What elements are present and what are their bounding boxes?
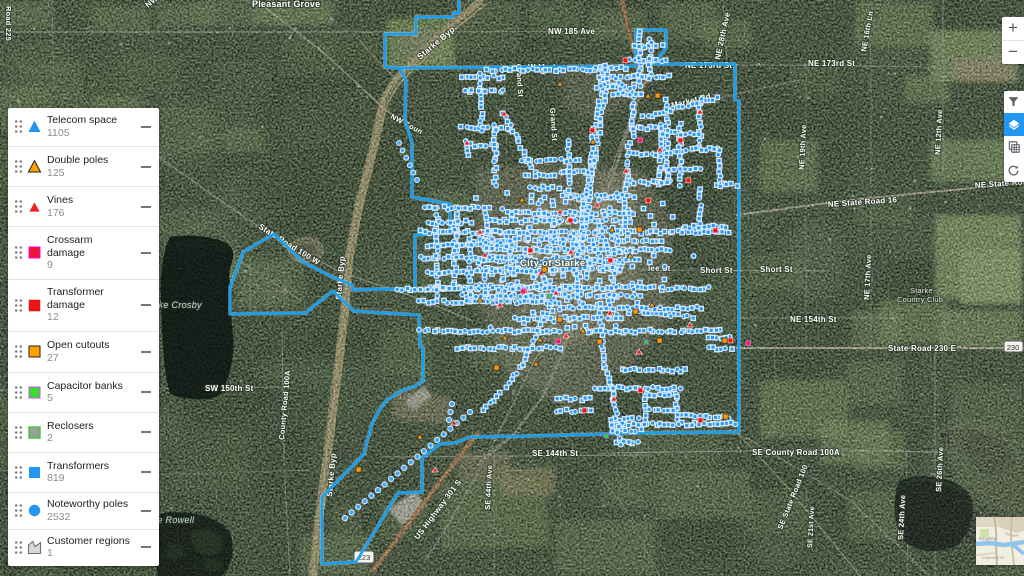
svg-text:Short St: Short St (700, 266, 733, 275)
svg-text:Kingsley: Kingsley (979, 536, 997, 541)
svg-text:Starke: Starke (910, 286, 933, 295)
svg-text:Country Club: Country Club (897, 295, 943, 304)
svg-text:SE County Road 100A: SE County Road 100A (752, 448, 840, 457)
svg-text:Road 225: Road 225 (4, 6, 13, 41)
svg-text:SW 150th St: SW 150th St (205, 384, 254, 393)
svg-text:State Road 230 E: State Road 230 E (888, 344, 957, 353)
svg-text:NW 185 Ave: NW 185 Ave (548, 27, 596, 36)
svg-text:NE 154th St: NE 154th St (790, 315, 837, 324)
svg-text:Short St: Short St (760, 265, 793, 274)
svg-text:Pleasant Grove: Pleasant Grove (252, 0, 320, 9)
svg-text:230: 230 (1007, 343, 1020, 352)
svg-text:Columbia St: Columbia St (982, 555, 1005, 560)
svg-text:NE 173rd St: NE 173rd St (808, 59, 855, 68)
svg-text:SE 144th St: SE 144th St (532, 449, 578, 458)
svg-text:City of Starke: City of Starke (520, 258, 585, 269)
